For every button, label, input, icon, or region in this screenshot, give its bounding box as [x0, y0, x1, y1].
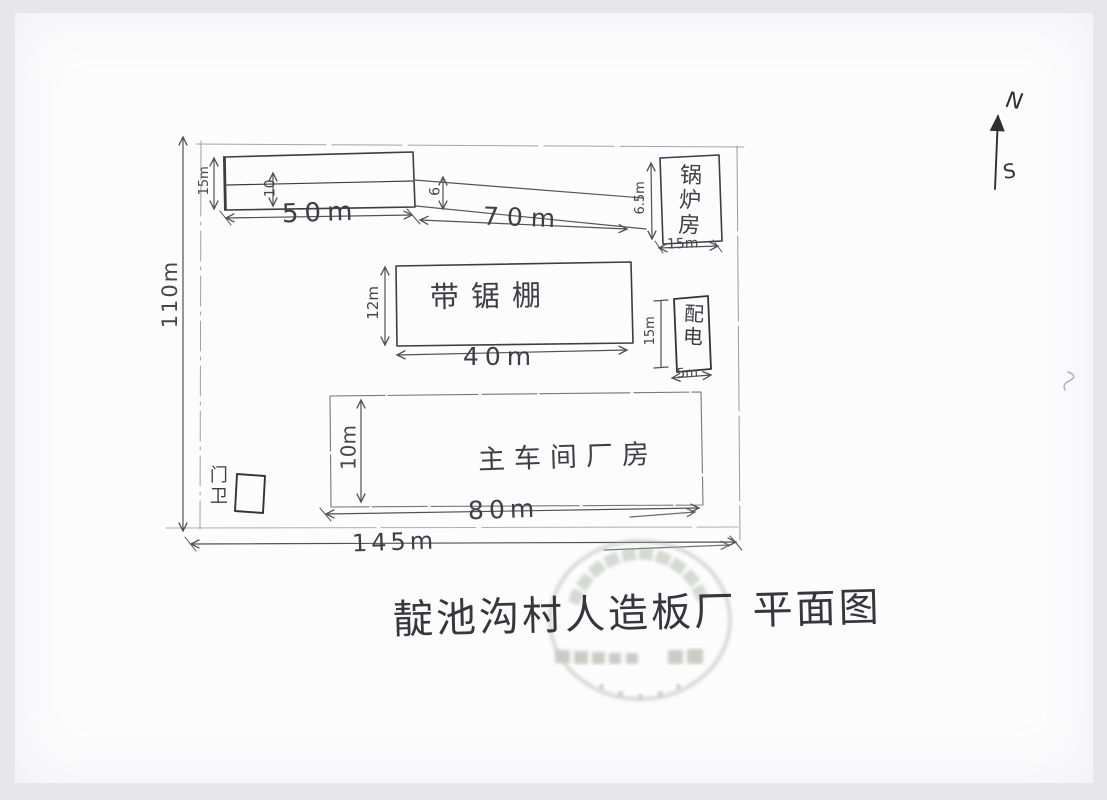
road-width-dim-label: 6 — [429, 173, 444, 209]
gatehouse-outline — [235, 474, 265, 513]
strip-building-midline — [227, 181, 413, 185]
stamp-center-text — [555, 649, 703, 664]
power-height-dim-label: 15m — [644, 308, 658, 354]
main-workshop-label: 主车间厂房 — [478, 441, 659, 476]
dimension-ticks — [185, 209, 742, 551]
strip-width-dim-label: 50m — [282, 199, 359, 229]
boiler-room-label: 锅炉房 — [675, 163, 701, 239]
workshop-height-dim-label: 10m — [339, 420, 360, 476]
south-label: S — [1002, 160, 1018, 183]
power-width-dim-label: 5m — [677, 366, 699, 381]
site-width-dim-label: 145m — [352, 529, 438, 557]
band-saw-shed-label: 带锯棚 — [430, 280, 554, 313]
shed-width-dim-label: 40m — [463, 344, 537, 370]
site-plan-drawing — [0, 0, 1107, 800]
shed-height-dim-label: 12m — [366, 280, 382, 326]
boiler-height-dim-label: 6.5m — [634, 173, 648, 223]
dim-line-boiler-6-5m — [651, 163, 652, 239]
stamp-bottom-digits — [599, 684, 681, 700]
road-edge-upper — [414, 180, 643, 198]
north-arrow — [995, 116, 998, 189]
scanned-site-plan: N S 110m 145m 15m 10 50m 6 70m 6.5m 锅炉房 … — [0, 0, 1107, 800]
power-room-label: 配电 — [680, 302, 703, 349]
road-length-dim-label: 70m — [483, 204, 564, 233]
pencil-mark — [1064, 372, 1074, 390]
strip-inner-dim-label: 10 — [264, 168, 279, 208]
strip-height-dim-label: 15m — [198, 160, 212, 202]
gatehouse-label: 门卫 — [207, 465, 226, 507]
site-height-dim-label: 110m — [159, 259, 181, 329]
boiler-width-dim-label: 15m — [667, 236, 699, 252]
workshop-width-dim-label: 80m — [468, 496, 540, 525]
strip-left-edge — [224, 157, 225, 210]
